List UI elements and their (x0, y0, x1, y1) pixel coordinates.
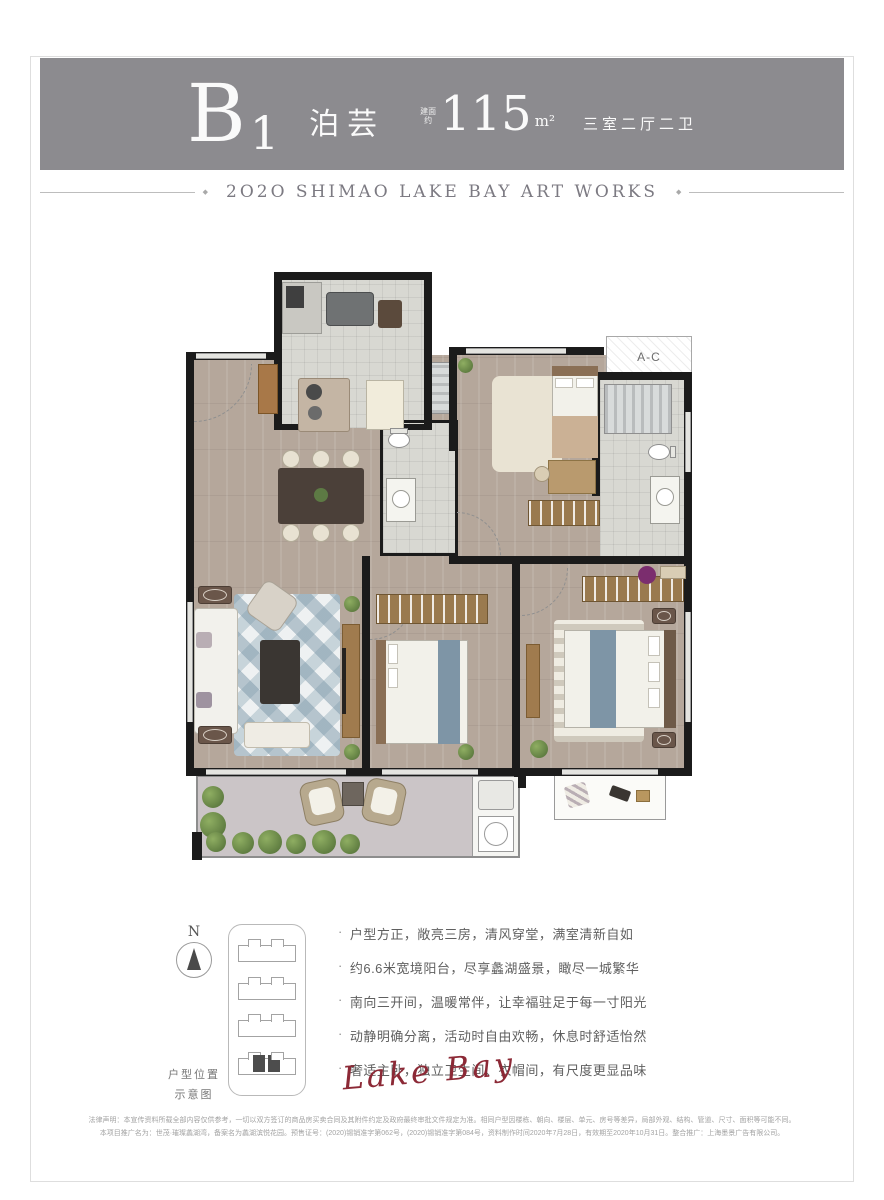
subtitle-text: 2O2O SHIMAO LAKE BAY ART WORKS (226, 182, 658, 202)
plant (202, 786, 224, 808)
laundry-sink (478, 780, 514, 810)
bed-headboard (664, 630, 676, 728)
chair-cushion (308, 786, 337, 816)
plant (312, 830, 336, 854)
toilet (648, 444, 670, 460)
burner (308, 406, 322, 420)
wall (600, 372, 692, 380)
plant (458, 358, 473, 373)
desk (548, 460, 596, 494)
legal-disclaimer: 法律声明：本宣传资料所载全部内容仅供参考，一切以双方签订的商品房买卖合同及其附件… (62, 1114, 822, 1141)
plant (344, 744, 360, 760)
subtitle-row: ◆ 2O2O SHIMAO LAKE BAY ART WORKS ◆ (40, 182, 844, 202)
area-group: 建面约 115 m² (419, 90, 555, 138)
kitchen-appliance (286, 286, 304, 308)
toilet (388, 432, 410, 448)
area-unit: m² (535, 112, 555, 130)
side-table (198, 586, 232, 604)
coffee-machine (378, 300, 402, 328)
building-outline (238, 945, 296, 962)
bullet-icon: · (338, 924, 343, 943)
keyplan-caption-line2: 示意图 (164, 1086, 224, 1106)
dining-chair (282, 450, 300, 468)
wall-stub (192, 832, 202, 860)
area-prefix: 建面约 (419, 107, 437, 126)
tv-screen (342, 648, 346, 714)
pillow (648, 636, 660, 656)
keyplan-caption: 户型位置 示意图 (164, 1066, 224, 1106)
stove (298, 378, 350, 432)
building-outline (238, 983, 296, 1000)
sofa (194, 608, 238, 734)
bed-blanket (552, 416, 598, 458)
subtitle-line-right (689, 192, 844, 193)
feature-text: 南向三开间，温暖常伴，让幸福驻足于每一寸阳光 (350, 992, 647, 1011)
sofa-pillow (196, 692, 212, 708)
centerpiece (314, 488, 328, 502)
flyer-page: B 1 泊芸 建面约 115 m² 三室二厅二卫 ◆ 2O2O SHIMAO L… (0, 0, 884, 1200)
dining-chair (282, 524, 300, 542)
coffee-table (260, 640, 300, 704)
bed-headboard (552, 366, 598, 376)
unit-code-sub: 1 (250, 110, 279, 156)
bullet-icon: · (338, 1026, 343, 1045)
sofa-pillow (196, 632, 212, 648)
dining-chair (312, 524, 330, 542)
floor-plan: A-C (186, 272, 692, 868)
desk-chair (534, 466, 550, 482)
sink-basin (392, 490, 410, 508)
shower-area (604, 384, 672, 434)
area-value: 115 (440, 90, 532, 138)
kitchen-sink (326, 292, 374, 326)
plant (206, 832, 226, 852)
bench (244, 722, 310, 748)
highlighted-unit (268, 1055, 280, 1072)
balcony-table (342, 782, 364, 806)
ac-label: A-C (637, 350, 661, 364)
window (196, 353, 266, 359)
nightstand (652, 608, 676, 624)
compass-circle (176, 942, 212, 978)
plant (258, 830, 282, 854)
room-count-label: 三室二厅二卫 (583, 113, 697, 134)
bed-runner (438, 640, 460, 744)
plant (232, 832, 254, 854)
window (466, 348, 566, 354)
bullet-icon: · (338, 992, 343, 1011)
dining-chair (342, 524, 360, 542)
sink-basin (656, 488, 674, 506)
unit-code-main: B (187, 74, 246, 154)
window (685, 412, 691, 472)
wall (274, 272, 432, 280)
dresser (660, 566, 686, 579)
north-label: N (172, 924, 216, 940)
pouf (638, 566, 656, 584)
subtitle-line-left (40, 192, 195, 193)
master-wardrobe (582, 576, 684, 602)
wall (424, 272, 432, 430)
wall (449, 556, 692, 564)
north-arrow-icon (187, 948, 201, 970)
dining-chair (312, 450, 330, 468)
legal-line1: 法律声明：本宣传资料所载全部内容仅供参考，一切以双方签订的商品房买卖合同及其附件… (62, 1114, 822, 1127)
bed-runner (590, 630, 616, 728)
plant (344, 596, 360, 612)
pillow (555, 378, 573, 388)
plant (530, 740, 548, 758)
diamond-icon: ◆ (676, 188, 681, 196)
bedroom2-wardrobe (528, 500, 600, 526)
wall (512, 560, 520, 772)
toilet-tank (390, 428, 408, 434)
sliding-door (562, 769, 658, 775)
keyplan-box (228, 924, 306, 1096)
header-band: B 1 泊芸 建面约 115 m² 三室二厅二卫 (40, 58, 844, 170)
window (187, 602, 193, 722)
feature-item: · 南向三开间，温暖常伴，让幸福驻足于每一寸阳光 (338, 992, 658, 1011)
sliding-door (382, 769, 478, 775)
plant (286, 834, 306, 854)
book (636, 790, 650, 802)
tv-console (526, 644, 540, 718)
shoe-cabinet (258, 364, 278, 414)
washer-door (484, 822, 508, 846)
wall (449, 347, 457, 451)
sliding-door (206, 769, 346, 775)
feature-text: 户型方正，敞亮三房，清风穿堂，满室清新自如 (350, 924, 634, 943)
building-outline-highlighted (238, 1058, 296, 1075)
legal-line2: 本项目推广名为：世茂·璀璨蠡湖湾，备案名为蠡湖滨悦花园。预售证号：(2020)锡… (62, 1127, 822, 1140)
feature-item: · 动静明确分离，活动时自由欢畅，休息时舒适怡然 (338, 1026, 658, 1045)
nightstand (652, 732, 676, 748)
pillow (648, 688, 660, 708)
feature-text: 约6.6米宽境阳台，尽享蠡湖盛景，瞰尽一城繁华 (350, 958, 640, 977)
plant (340, 834, 360, 854)
wall (362, 556, 370, 772)
pillow (388, 644, 398, 664)
north-compass: N (172, 924, 216, 978)
highlighted-unit (253, 1055, 265, 1072)
burner (306, 384, 322, 400)
pillow (388, 668, 398, 688)
toilet-tank (670, 446, 676, 458)
building-outline (238, 1020, 296, 1037)
side-table (198, 726, 232, 744)
pillow (648, 662, 660, 682)
bedroom3-wardrobe (376, 594, 488, 624)
unit-name: 泊芸 (309, 99, 385, 143)
plant (458, 744, 474, 760)
dining-chair (342, 450, 360, 468)
diamond-icon: ◆ (203, 188, 208, 196)
bullet-icon: · (338, 958, 343, 977)
feature-item: · 约6.6米宽境阳台，尽享蠡湖盛景，瞰尽一城繁华 (338, 958, 658, 977)
fridge (366, 380, 404, 430)
feature-item: · 户型方正，敞亮三房，清风穿堂，满室清新自如 (338, 924, 658, 943)
window (685, 612, 691, 722)
feature-text: 动静明确分离，活动时自由欢畅，休息时舒适怡然 (350, 1026, 647, 1045)
pillow (576, 378, 594, 388)
keyplan-caption-line1: 户型位置 (164, 1066, 224, 1086)
bed-headboard (376, 640, 386, 744)
